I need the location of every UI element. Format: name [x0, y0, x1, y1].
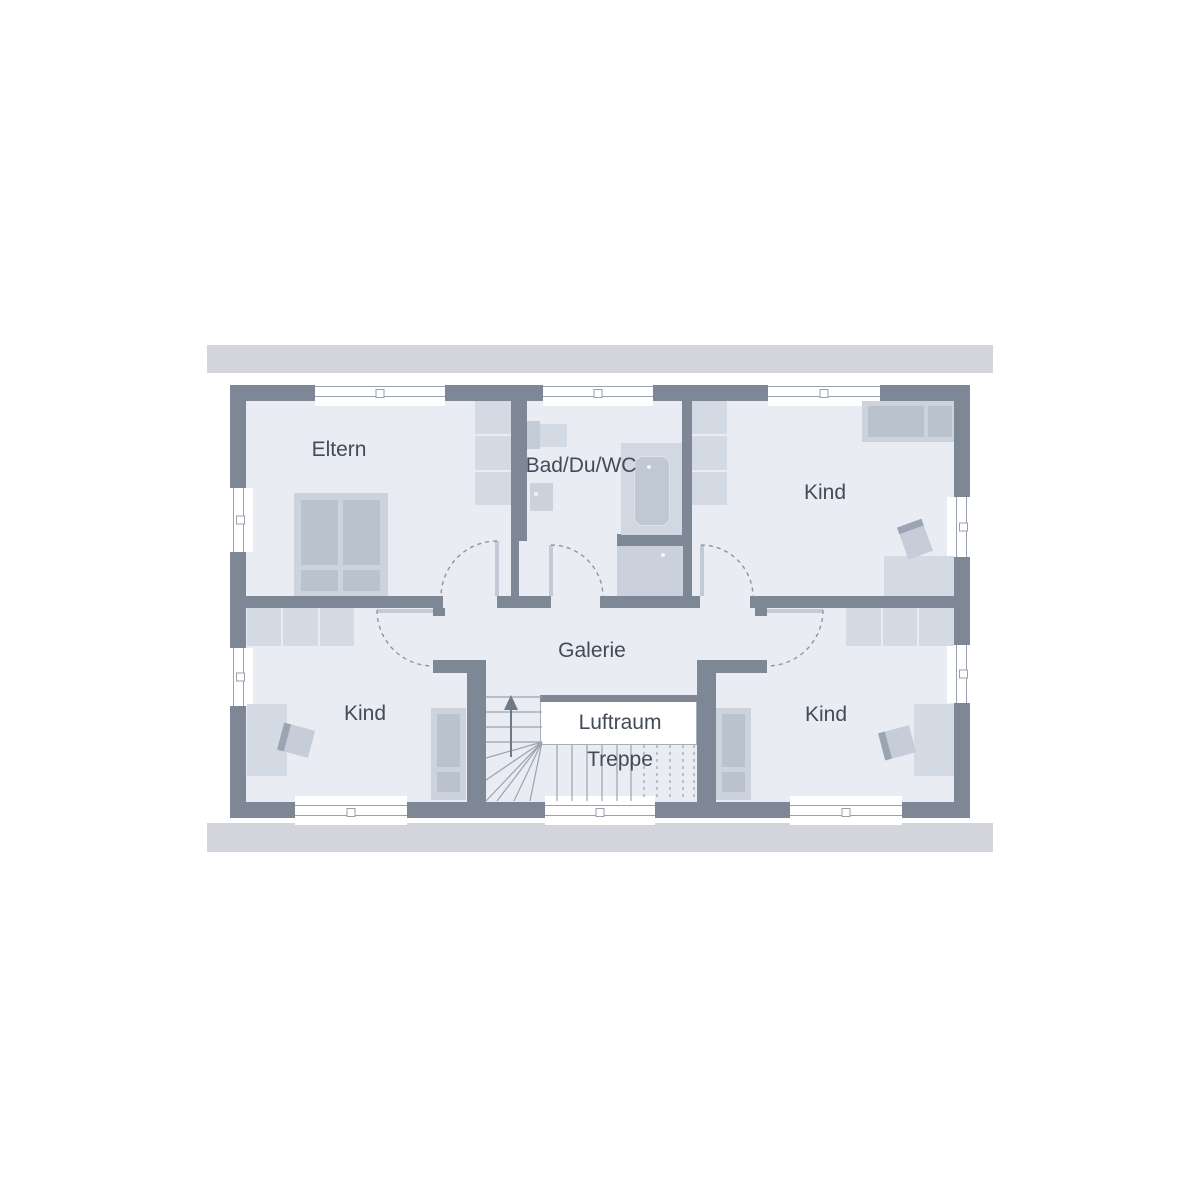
plan-line-overlay — [0, 0, 1200, 1200]
room-label-bad: Bad/Du/WC — [526, 454, 637, 478]
door-swing-arc-kind-tr — [701, 545, 753, 597]
room-label-luftraum: Luftraum — [579, 711, 662, 735]
room-label-treppe: Treppe — [587, 748, 653, 772]
stair-direction-arrow-icon — [504, 695, 518, 757]
stair-winder-line — [486, 742, 542, 801]
room-label-kind-bottom-right: Kind — [805, 703, 847, 727]
room-label-eltern: Eltern — [312, 438, 367, 462]
door-swing-arc-kind-bl — [377, 610, 433, 666]
door-swing-arc-bad — [551, 545, 603, 597]
room-label-kind-bottom-left: Kind — [344, 702, 386, 726]
floor-plan-canvas: Eltern Bad/Du/WC Kind Galerie Kind Kind … — [0, 0, 1200, 1200]
room-label-galerie: Galerie — [558, 639, 626, 663]
door-swing-arc-kind-br — [767, 610, 823, 666]
room-label-kind-top-right: Kind — [804, 481, 846, 505]
door-swing-arc-eltern — [441, 541, 497, 597]
